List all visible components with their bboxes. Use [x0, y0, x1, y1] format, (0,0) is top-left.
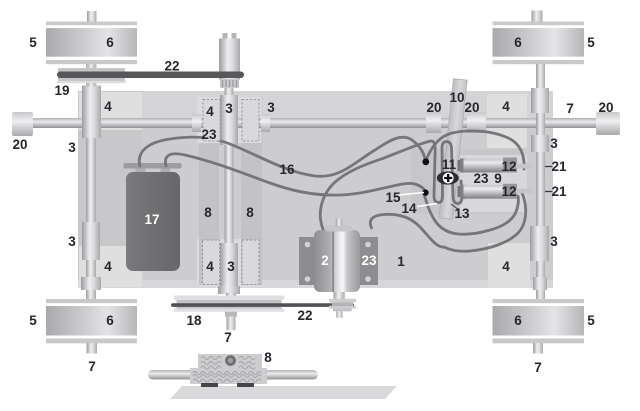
- svg-text:8: 8: [204, 205, 212, 220]
- svg-text:7: 7: [566, 101, 574, 116]
- svg-text:22: 22: [164, 59, 179, 74]
- svg-text:18: 18: [186, 313, 202, 328]
- svg-text:5: 5: [29, 313, 37, 328]
- svg-text:17: 17: [144, 212, 159, 227]
- svg-text:7: 7: [534, 360, 542, 375]
- svg-text:11: 11: [442, 157, 457, 172]
- svg-text:4: 4: [206, 104, 214, 119]
- svg-text:20: 20: [426, 100, 441, 115]
- svg-text:23: 23: [473, 171, 489, 186]
- svg-text:6: 6: [514, 35, 522, 50]
- svg-text:13: 13: [454, 206, 470, 221]
- svg-text:3: 3: [267, 100, 275, 115]
- svg-text:4: 4: [502, 259, 510, 274]
- svg-text:4: 4: [104, 259, 112, 274]
- svg-text:21: 21: [551, 159, 567, 174]
- svg-text:6: 6: [106, 313, 114, 328]
- svg-text:20: 20: [598, 100, 613, 115]
- svg-text:1: 1: [397, 254, 405, 269]
- svg-text:21: 21: [551, 184, 567, 199]
- svg-text:7: 7: [88, 359, 96, 374]
- svg-text:19: 19: [54, 83, 69, 98]
- svg-text:2: 2: [321, 253, 329, 268]
- svg-text:20: 20: [464, 100, 479, 115]
- svg-text:12: 12: [501, 184, 516, 199]
- svg-text:5: 5: [587, 35, 595, 50]
- svg-text:8: 8: [264, 350, 272, 365]
- svg-text:23: 23: [201, 127, 217, 142]
- svg-text:3: 3: [68, 140, 76, 155]
- svg-text:3: 3: [550, 136, 558, 151]
- svg-text:23: 23: [361, 253, 377, 268]
- svg-text:8: 8: [246, 205, 254, 220]
- svg-text:6: 6: [106, 35, 114, 50]
- svg-text:3: 3: [550, 234, 558, 249]
- svg-text:7: 7: [224, 330, 232, 345]
- svg-text:5: 5: [587, 313, 595, 328]
- svg-text:4: 4: [206, 259, 214, 274]
- svg-text:22: 22: [297, 308, 312, 323]
- svg-text:20: 20: [12, 137, 27, 152]
- svg-text:3: 3: [68, 234, 76, 249]
- svg-text:15: 15: [385, 190, 401, 205]
- svg-text:10: 10: [449, 90, 464, 105]
- svg-text:4: 4: [502, 99, 510, 114]
- svg-text:6: 6: [514, 313, 522, 328]
- svg-text:12: 12: [501, 159, 516, 174]
- svg-text:3: 3: [227, 259, 235, 274]
- svg-text:5: 5: [29, 35, 37, 50]
- svg-text:4: 4: [104, 99, 112, 114]
- svg-text:14: 14: [401, 201, 417, 216]
- svg-text:3: 3: [225, 101, 233, 116]
- svg-text:16: 16: [279, 162, 295, 177]
